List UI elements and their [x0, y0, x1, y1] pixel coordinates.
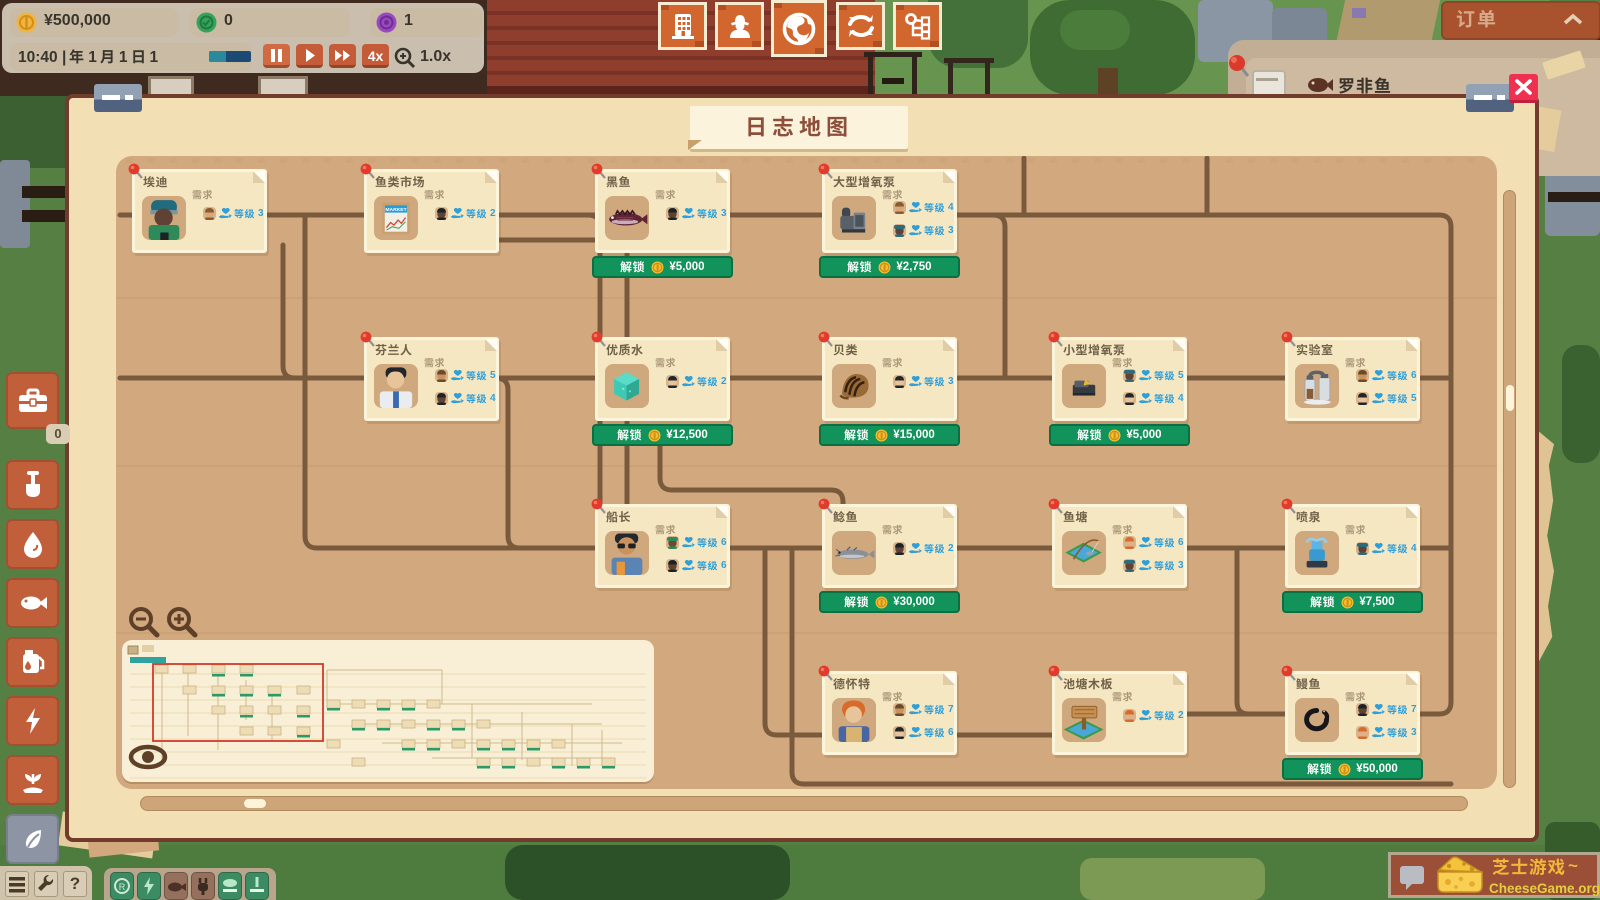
svg-text:MARKET: MARKET	[385, 207, 406, 213]
svg-text:R: R	[119, 882, 126, 892]
